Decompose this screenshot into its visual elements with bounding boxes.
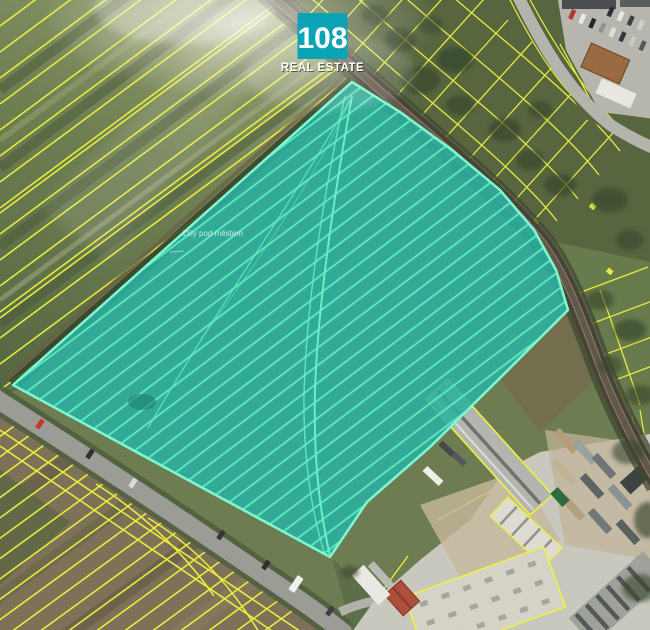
aerial-map: Díly pod městem 108 REAL ESTATE REAL EST… xyxy=(0,0,650,630)
field-name-label: Díly pod městem xyxy=(183,229,243,238)
logo-caption: REAL ESTATE xyxy=(281,62,364,74)
logo-number: 108 xyxy=(297,22,347,55)
aerial-map-canvas: Díly pod městem 108 REAL ESTATE REAL EST… xyxy=(0,0,650,630)
